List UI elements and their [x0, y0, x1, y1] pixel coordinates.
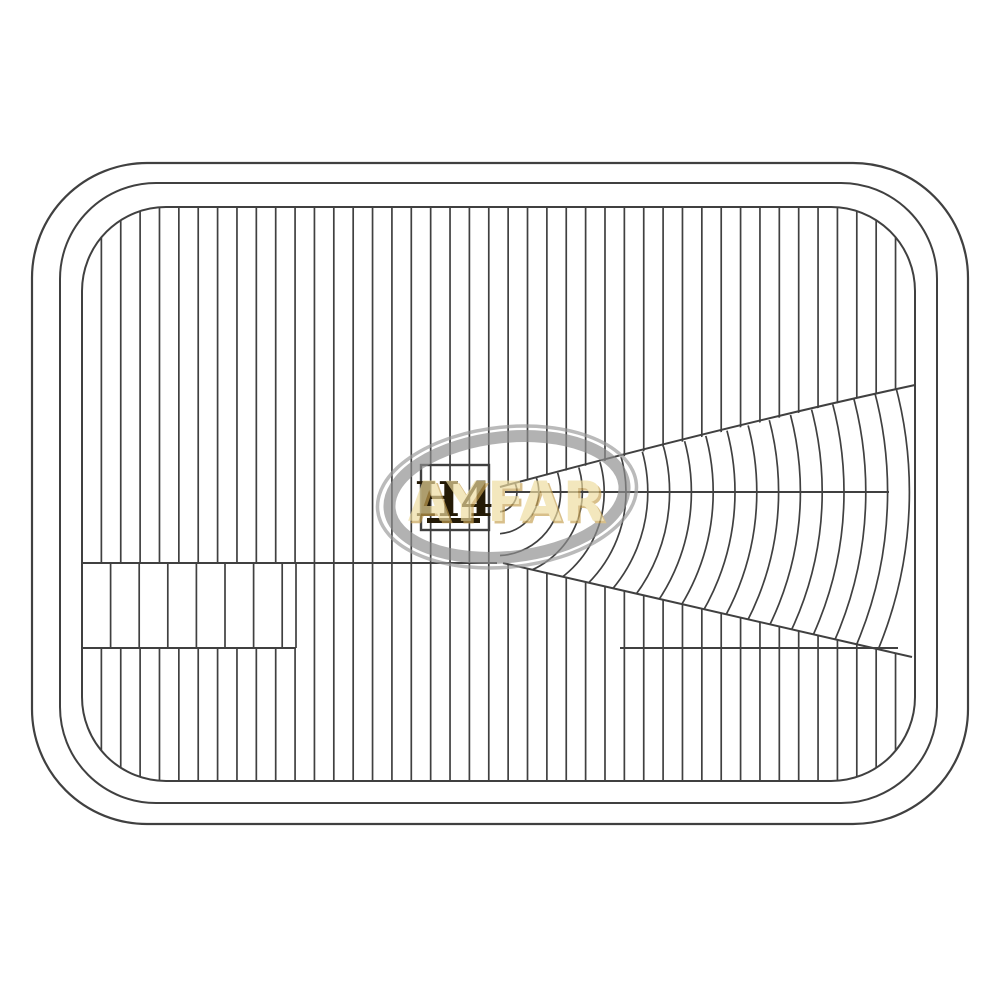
watermark-text: AYFAR: [408, 470, 606, 534]
product-image-canvas: H4 AYFAR AYFAR: [0, 0, 1000, 1000]
block-band-mask: [83, 564, 296, 647]
left-block-band: [82, 563, 497, 648]
headlight-lens-drawing: H4 AYFAR AYFAR: [0, 0, 1000, 1000]
